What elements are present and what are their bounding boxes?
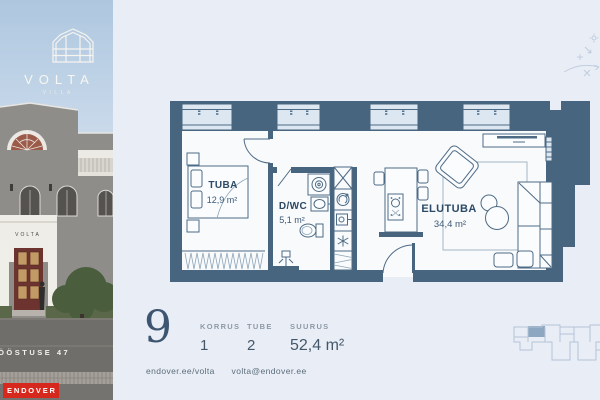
floor-plan: TUBA 12,9 m² D/WC 5,1 m² ELUTUBA 34,4 m² <box>145 85 595 315</box>
field-value: 1 <box>200 337 240 354</box>
logo-subtitle: VILLA <box>0 90 113 96</box>
room-area: 5,1 m² <box>279 215 305 225</box>
website-link[interactable]: endover.ee/volta <box>146 366 215 376</box>
street-label: TÖÖSTUSE 47 <box>0 348 70 357</box>
field-label: SUURUS <box>290 322 344 331</box>
room-area: 34,4 m² <box>434 219 466 230</box>
portico: VOLTA <box>0 215 57 310</box>
wall-lamp <box>49 184 52 191</box>
bed <box>188 166 248 218</box>
chair <box>418 170 428 183</box>
page: VOLTA <box>0 0 600 400</box>
chair <box>374 172 384 185</box>
steps <box>12 310 45 316</box>
nightstand <box>187 153 199 165</box>
nightstand <box>187 220 199 232</box>
window <box>463 104 510 130</box>
field-label: KORRUS <box>200 322 240 331</box>
room-label: TUBA <box>208 180 237 191</box>
grass <box>0 306 12 319</box>
logo-title: VOLTA <box>0 72 113 87</box>
wall-notch <box>550 101 561 110</box>
window <box>370 104 418 130</box>
key-plan <box>512 322 600 370</box>
toilet <box>300 224 323 237</box>
room-label: ELUTUBA <box>421 203 476 215</box>
key-plan-highlight <box>528 326 545 337</box>
field-suurus: SUURUS 52,4 m² <box>290 322 344 355</box>
endover-logo[interactable]: ENDOVER <box>3 383 59 398</box>
field-value: 2 <box>247 337 273 354</box>
field-label: TUBE <box>247 322 273 331</box>
person <box>40 282 45 287</box>
tv <box>497 136 537 139</box>
room-label: D/WC <box>279 201 307 212</box>
radiator <box>546 137 552 161</box>
cornice <box>78 150 113 176</box>
pouf <box>517 251 533 267</box>
room-area: 12,9 m² <box>207 195 238 205</box>
email-link[interactable]: volta@endover.ee <box>232 366 307 376</box>
contact-links: endover.ee/volta volta@endover.ee <box>146 366 321 376</box>
road <box>0 318 113 372</box>
window <box>182 104 232 130</box>
pouf <box>494 253 513 267</box>
volta-logo-icon <box>51 27 95 63</box>
window <box>277 104 320 130</box>
round-table <box>486 207 509 230</box>
wall-lamp <box>10 184 13 191</box>
field-tube: TUBE 2 <box>247 322 273 354</box>
apartment-number: 9 <box>144 306 172 350</box>
tv-console <box>483 134 545 147</box>
field-value: 52,4 m² <box>290 337 344 355</box>
building-sign: VOLTA <box>15 232 41 238</box>
building-photo: VOLTA <box>0 0 113 400</box>
compass-icon <box>556 26 600 80</box>
field-korrus: KORRUS 1 <box>200 322 240 354</box>
washing-machine <box>308 174 330 195</box>
chair <box>418 187 428 200</box>
